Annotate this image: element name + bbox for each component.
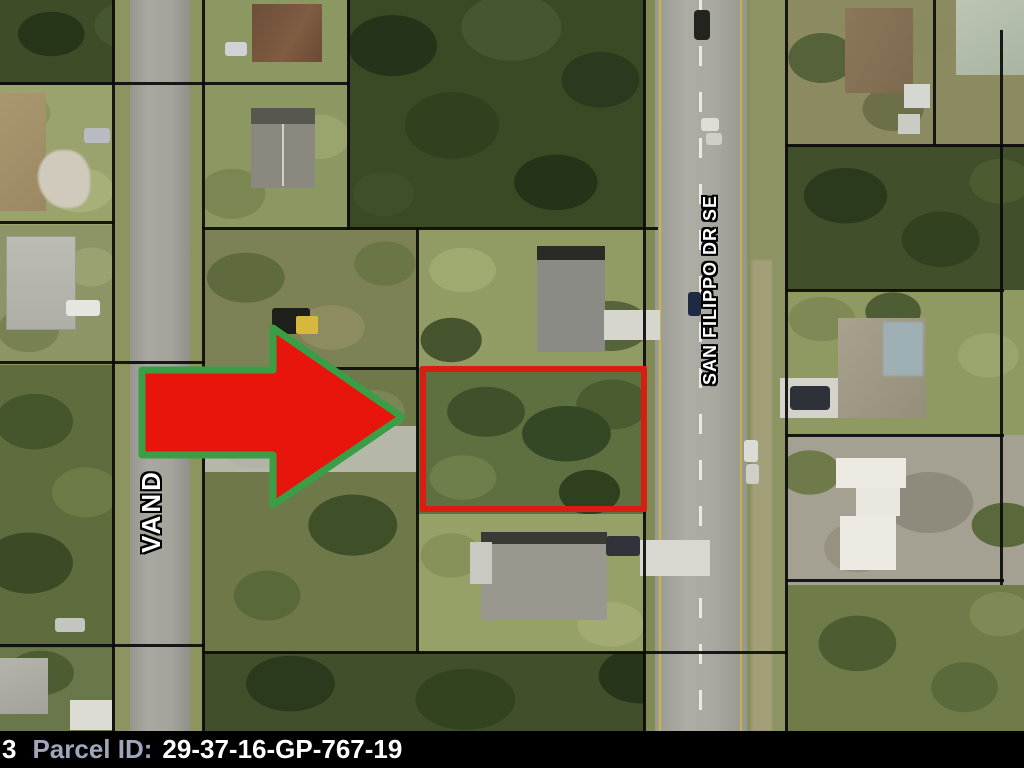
parcel-line <box>786 579 1004 582</box>
house-roof <box>0 93 46 211</box>
main-road-yellow-line-left <box>659 0 661 731</box>
footer-truncated-number: 3 <box>2 734 16 765</box>
patio-pad <box>470 542 492 584</box>
terrain-woods-right <box>786 145 1024 290</box>
building-roof <box>856 488 900 516</box>
vehicle <box>694 10 710 40</box>
parcel-id-value: 29-37-16-GP-767-19 <box>162 734 402 765</box>
parcel-line <box>786 144 1024 147</box>
parcel-line <box>0 644 205 647</box>
parcel-line <box>1000 30 1003 585</box>
aerial-imagery: SAN FILIPPO DR SE VAND <box>0 0 1024 731</box>
building-roof <box>956 0 1024 75</box>
building-roof <box>6 236 76 330</box>
highlight-arrow-shape <box>142 328 402 505</box>
building-roof <box>840 516 896 570</box>
parcel-line <box>785 0 788 731</box>
footer-bar: 3 Parcel ID: 29-37-16-GP-767-19 <box>0 731 1024 768</box>
parcel-id-label: Parcel ID: <box>32 734 152 765</box>
house-roof <box>0 658 48 714</box>
building-roof <box>836 458 906 488</box>
vehicle <box>55 618 85 632</box>
highlight-arrow <box>130 318 420 518</box>
shed-roof <box>898 114 920 134</box>
parcel-line <box>202 227 658 230</box>
vehicle <box>701 118 719 131</box>
parcel-line <box>0 82 349 85</box>
parcel-line <box>202 651 787 654</box>
shed-roof <box>70 700 112 730</box>
house-roof <box>481 532 607 620</box>
vehicle <box>66 300 100 316</box>
vehicle <box>746 464 759 484</box>
driveway <box>604 310 660 340</box>
vehicle <box>706 133 722 145</box>
property-aerial-screenshot: SAN FILIPPO DR SE VAND 3 Parcel ID: 29-3… <box>0 0 1024 768</box>
parcel-line <box>933 0 936 145</box>
parcel-highlight <box>420 366 647 512</box>
terrain-right-bottom <box>786 585 1024 731</box>
house-roof <box>252 4 322 62</box>
vehicle <box>606 536 640 556</box>
vehicle <box>790 386 830 410</box>
main-road-yellow-line-right <box>740 0 742 731</box>
vehicle <box>225 42 247 56</box>
house-roof <box>537 246 605 352</box>
street-label-san-filippo: SAN FILIPPO DR SE <box>700 175 724 405</box>
vehicle <box>744 440 758 462</box>
parcel-line <box>112 0 115 731</box>
terrain-lawn-center-house <box>417 228 645 368</box>
parcel-line <box>347 0 350 230</box>
terrain-woods-top-center <box>348 0 645 228</box>
shed-roof <box>904 84 930 108</box>
house-roof <box>845 8 913 93</box>
house-roof-section <box>883 322 923 376</box>
parcel-line <box>0 221 114 224</box>
main-road-worn-path <box>752 260 772 731</box>
driveway <box>640 540 710 576</box>
terrain-scrub-left-lower <box>0 365 114 648</box>
parcel-line <box>786 434 1004 437</box>
building-ridge <box>282 124 284 186</box>
vehicle <box>84 128 110 143</box>
parcel-line <box>786 289 1004 292</box>
